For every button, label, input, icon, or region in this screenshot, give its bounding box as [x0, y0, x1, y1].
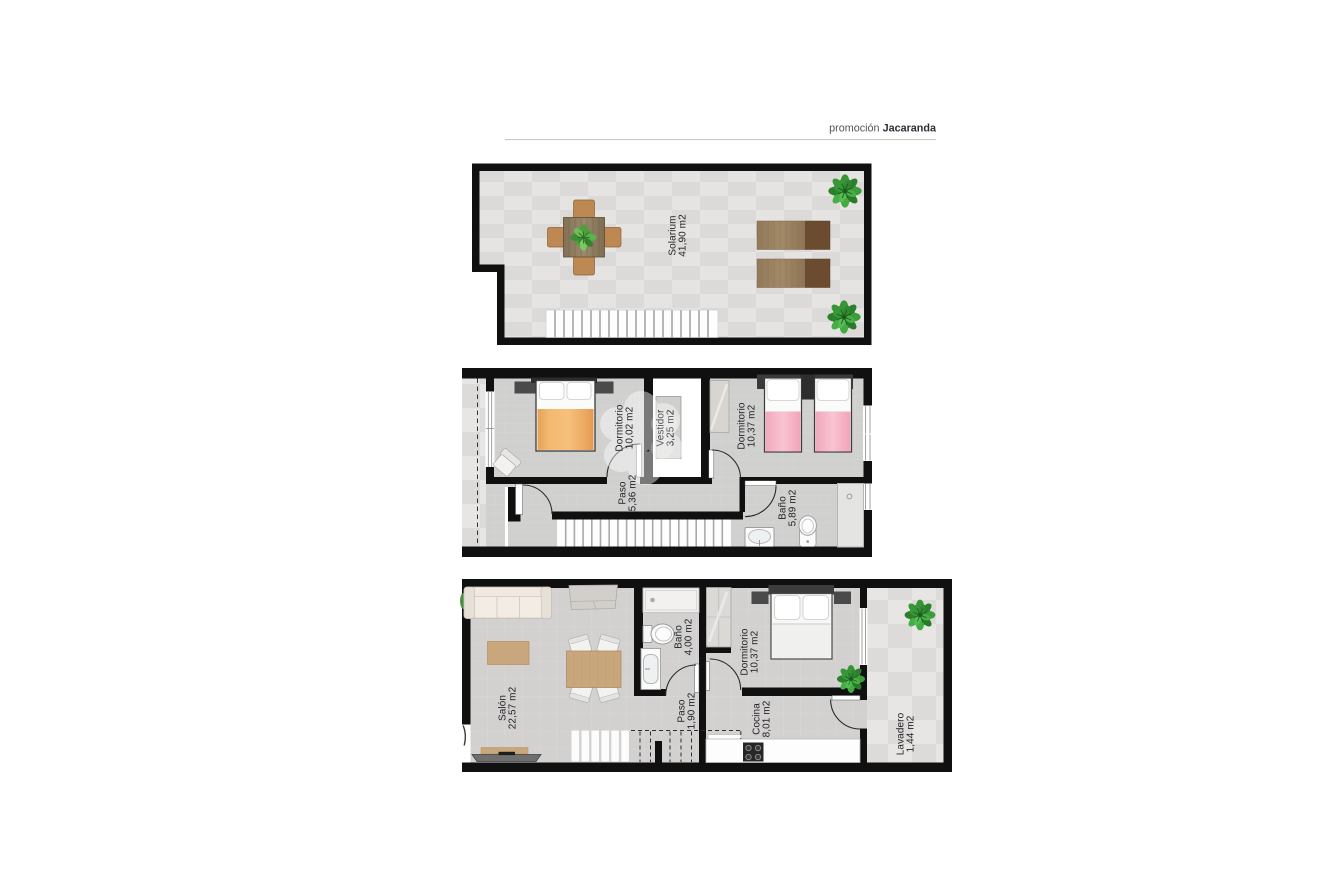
svg-text:1,90 m2: 1,90 m2	[686, 692, 697, 729]
svg-text:5,36 m2: 5,36 m2	[627, 474, 638, 511]
svg-text:10,37 m2: 10,37 m2	[746, 404, 757, 447]
svg-text:4,00 m2: 4,00 m2	[683, 618, 694, 655]
svg-text:41,90 m2: 41,90 m2	[677, 214, 688, 257]
svg-text:10,02 m2: 10,02 m2	[624, 406, 635, 449]
svg-text:22,57 m2: 22,57 m2	[507, 686, 518, 729]
svg-text:1,44 m2: 1,44 m2	[905, 715, 916, 752]
svg-text:promoción Jacaranda: promoción Jacaranda	[829, 123, 937, 135]
svg-text:8,01 m2: 8,01 m2	[761, 700, 772, 737]
svg-text:5,89 m2: 5,89 m2	[787, 489, 798, 526]
svg-text:10,37 m2: 10,37 m2	[749, 630, 760, 673]
